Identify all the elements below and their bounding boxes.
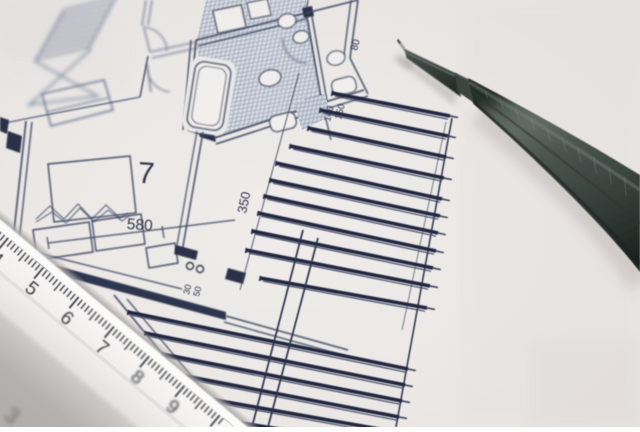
svg-text:580: 580 xyxy=(126,216,153,235)
svg-text:7: 7 xyxy=(137,157,156,191)
